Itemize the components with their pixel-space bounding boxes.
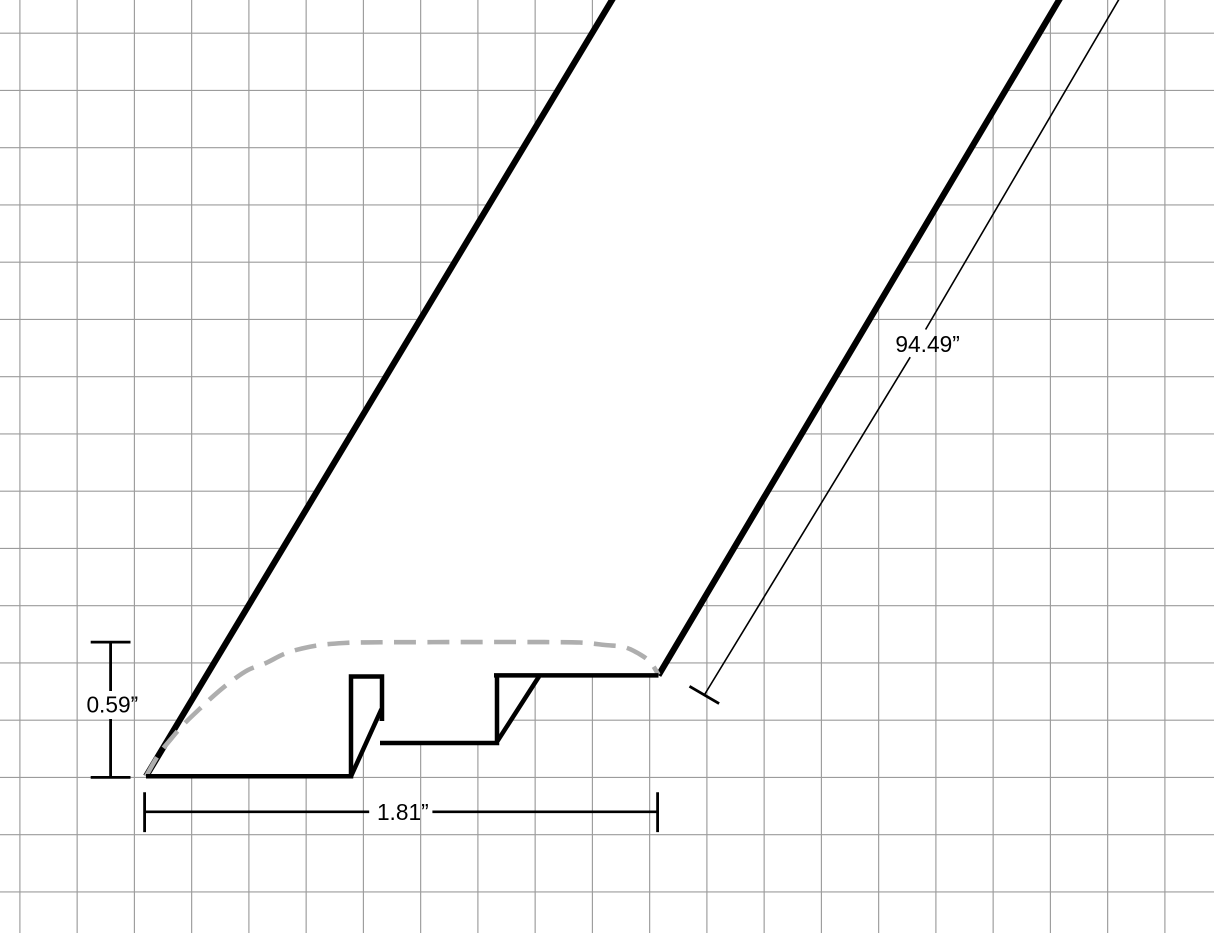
svg-text:0.59”: 0.59”	[86, 692, 138, 718]
svg-text:1.81”: 1.81”	[377, 799, 429, 825]
svg-text:94.49”: 94.49”	[895, 331, 959, 357]
